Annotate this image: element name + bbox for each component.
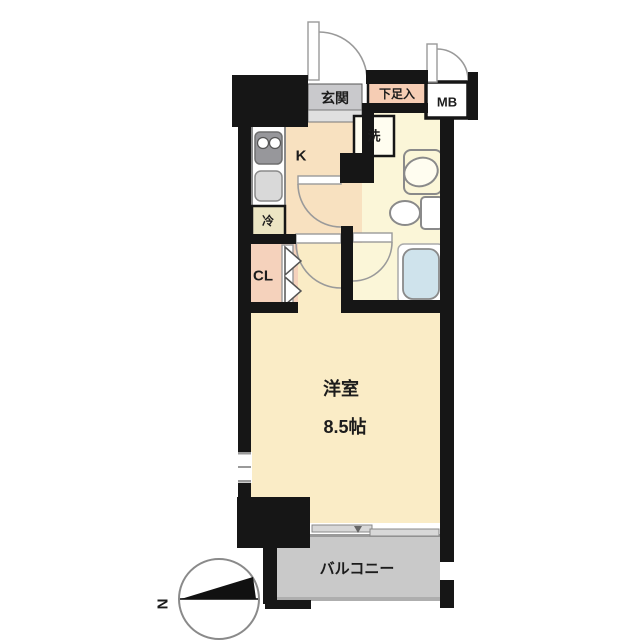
- north-compass: N: [155, 559, 260, 639]
- wall-balcony-right-upper: [440, 534, 454, 562]
- toilet-bowl: [390, 201, 420, 225]
- compass-north-wedge: [181, 577, 256, 599]
- entrance-door-arc: [319, 32, 367, 80]
- wall-top-shoe-cabinet: [366, 70, 428, 84]
- stove-burner-left: [258, 138, 269, 149]
- entrance-door-leaf: [308, 22, 319, 80]
- window-sash-right: [370, 529, 439, 536]
- closet-label: CL: [253, 268, 273, 285]
- left-window-line-bottom: [238, 480, 251, 483]
- compass-north-label: N: [155, 599, 172, 610]
- wall-kitchen-bath-divider: [341, 226, 353, 302]
- wall-balcony-bottom-stub: [265, 600, 311, 609]
- room-door-leaf: [296, 234, 341, 243]
- wall-top-left-block: [232, 75, 308, 127]
- bathroom-door-leaf: [353, 233, 392, 242]
- kitchen-label: K: [296, 148, 307, 165]
- meter-box-door-arc: [437, 49, 468, 80]
- wall-bottom-left-block: [237, 497, 310, 548]
- left-window-line-top: [238, 452, 251, 455]
- toilet-tank: [421, 197, 443, 229]
- wall-right: [440, 118, 454, 534]
- wall-bath-bottom: [341, 300, 454, 313]
- wall-balcony-right-lower: [440, 580, 454, 608]
- wall-kitchen-washroom-pillar: [340, 153, 374, 183]
- wall-left-upper: [238, 127, 251, 452]
- wall-closet-top: [250, 234, 296, 244]
- room-alcove-floor: [298, 236, 341, 313]
- wall-balcony-left: [263, 548, 277, 604]
- wall-washroom-top: [366, 103, 428, 113]
- main-room-label: 洋室: [323, 378, 359, 399]
- wall-left-lower: [238, 483, 251, 497]
- floorplan-drawing: N 玄関 下足入 MB K 洗 冷 CL 洋室 8.5帖 バルコニー: [0, 0, 640, 640]
- stove-burner-right: [270, 138, 281, 149]
- shoe-cabinet-label: 下足入: [379, 87, 415, 101]
- main-room-size: 8.5帖: [323, 416, 366, 437]
- washroom-door-leaf: [298, 176, 341, 184]
- bathtub: [403, 249, 439, 299]
- washer-label: 洗: [367, 129, 380, 144]
- left-window-line-mid: [238, 466, 251, 468]
- window-sash-left: [312, 525, 372, 532]
- refrigerator-label: 冷: [262, 213, 274, 228]
- balcony-label: バルコニー: [320, 561, 395, 578]
- wall-closet-bottom: [238, 302, 298, 313]
- wall-top-right-post: [468, 72, 478, 120]
- entrance-label: 玄関: [321, 90, 349, 106]
- meter-box-door-leaf: [427, 44, 437, 82]
- kitchen-sink: [255, 171, 282, 201]
- meter-box-label: MB: [437, 95, 457, 110]
- floorplan-canvas: N 玄関 下足入 MB K 洗 冷 CL 洋室 8.5帖 バルコニー: [0, 0, 640, 640]
